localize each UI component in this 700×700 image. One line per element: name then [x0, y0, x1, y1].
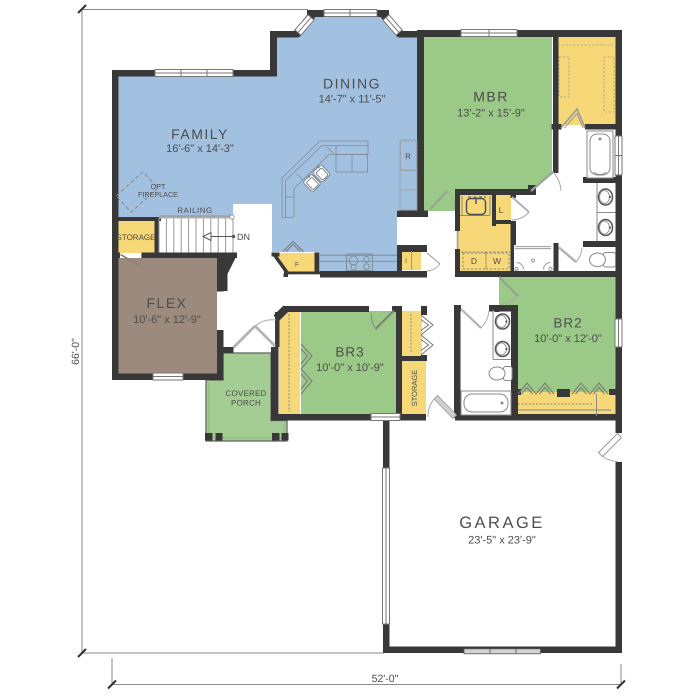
svg-text:D: D — [471, 256, 477, 266]
svg-text:STORAGE: STORAGE — [117, 233, 156, 242]
svg-text:66'-0": 66'-0" — [70, 338, 82, 365]
svg-text:RAILING: RAILING — [177, 206, 213, 215]
svg-text:I: I — [405, 258, 407, 265]
svg-text:13'-2" x 15'-9": 13'-2" x 15'-9" — [457, 108, 525, 120]
svg-text:52'-0": 52'-0" — [372, 673, 399, 685]
svg-text:F: F — [295, 262, 299, 269]
svg-text:16'-6" x 14'-3": 16'-6" x 14'-3" — [166, 143, 234, 155]
svg-text:14'-7" x 11'-5": 14'-7" x 11'-5" — [319, 94, 386, 106]
svg-text:COVERED: COVERED — [226, 389, 267, 398]
svg-text:10'-0" x 12'-0": 10'-0" x 12'-0" — [534, 333, 602, 345]
svg-text:L: L — [499, 205, 504, 215]
svg-text:MBR: MBR — [473, 89, 509, 105]
svg-text:BR3: BR3 — [335, 345, 364, 360]
svg-text:FAMILY: FAMILY — [171, 126, 229, 142]
svg-text:FLEX: FLEX — [146, 295, 187, 311]
svg-text:10'-6" x 12'-9": 10'-6" x 12'-9" — [133, 314, 201, 326]
svg-text:GARAGE: GARAGE — [459, 514, 545, 532]
svg-text:FIREPLACE: FIREPLACE — [138, 190, 178, 199]
svg-text:STORAGE: STORAGE — [410, 370, 419, 407]
svg-text:W: W — [493, 256, 501, 266]
svg-text:DINING: DINING — [323, 76, 381, 92]
svg-text:DN: DN — [237, 232, 250, 242]
svg-text:23'-5" x 23'-9": 23'-5" x 23'-9" — [468, 535, 536, 547]
svg-text:10'-0" x 10'-9": 10'-0" x 10'-9" — [316, 362, 384, 374]
svg-text:R: R — [405, 152, 411, 161]
svg-text:PORCH: PORCH — [231, 399, 261, 408]
svg-text:BR2: BR2 — [553, 316, 582, 331]
